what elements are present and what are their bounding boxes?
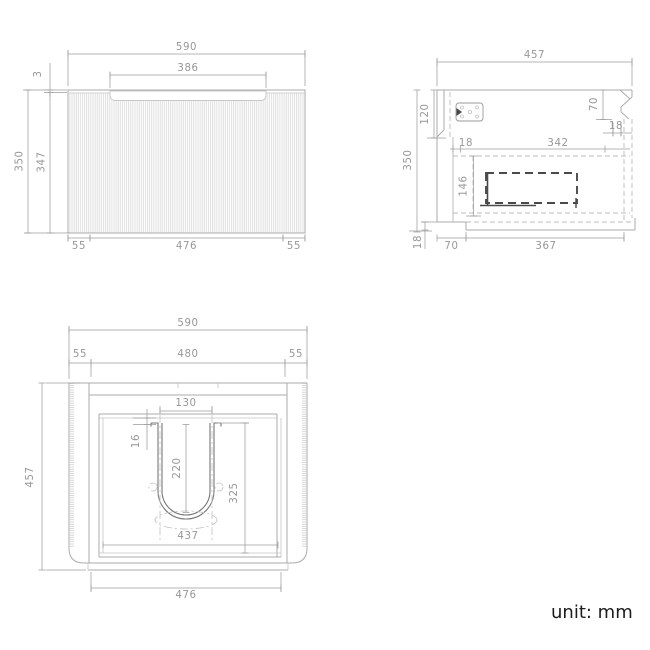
hidden-basin-outline xyxy=(486,173,577,203)
side-drawer-depth-dim: 342 xyxy=(547,138,568,149)
plan-front-width-dim: 476 xyxy=(175,590,196,601)
unit-label: unit: mm xyxy=(551,602,633,623)
front-view: 590 386 3 350 347 55 476 55 xyxy=(15,42,306,252)
side-back-gap-dim: 18 xyxy=(459,138,473,149)
plan-overall-width-dim: 590 xyxy=(177,318,198,329)
front-recess-width-dim: 386 xyxy=(177,63,198,74)
side-overall-height-dim: 350 xyxy=(403,149,414,170)
plan-cutout-offset-dim: 16 xyxy=(131,434,142,448)
plan-opening-width-dim: 480 xyxy=(177,349,198,360)
side-view: 457 120 350 70 18 18 342 146 18 70 367 xyxy=(403,50,635,252)
plan-inner-width-dim: 437 xyxy=(177,531,198,542)
side-overall-depth-dim: 457 xyxy=(524,50,545,61)
drawing-svg: 590 386 3 350 347 55 476 55 xyxy=(0,0,650,650)
wall-bracket xyxy=(456,103,483,121)
front-panel-height-dim: 347 xyxy=(37,151,48,172)
plan-left-side-dim: 55 xyxy=(73,349,87,360)
plan-right-side-dim: 55 xyxy=(289,349,303,360)
fluted-texture xyxy=(69,93,305,232)
side-drawer-height-dim: 146 xyxy=(459,175,470,196)
plan-cutout-width-dim: 130 xyxy=(175,398,196,409)
side-dims xyxy=(409,58,632,249)
side-bottom-back-offset-dim: 70 xyxy=(444,241,458,252)
side-rail-drop-dim: 120 xyxy=(420,103,431,124)
front-left-side-dim: 55 xyxy=(72,241,86,252)
front-overall-height-dim: 350 xyxy=(15,150,26,171)
plan-cutout-depth-dim: 220 xyxy=(172,457,183,478)
vanity-dimension-drawing: 590 386 3 350 347 55 476 55 xyxy=(0,0,650,650)
side-recess-setback-dim: 18 xyxy=(609,121,623,132)
side-bottom-thickness-dim: 18 xyxy=(413,235,424,249)
side-bottom-length-dim: 367 xyxy=(535,241,556,252)
plan-view: 590 55 480 55 457 130 16 220 325 437 476 xyxy=(25,318,307,601)
front-top-edge-dim: 3 xyxy=(33,70,44,77)
side-top-recess-height-dim: 70 xyxy=(589,97,600,111)
front-right-side-dim: 55 xyxy=(287,241,301,252)
front-overall-width-dim: 590 xyxy=(176,42,197,53)
front-center-width-dim: 476 xyxy=(176,241,197,252)
plan-overall-depth-dim: 457 xyxy=(25,466,36,487)
handle-recess xyxy=(110,91,266,101)
plan-inner-depth-dim: 325 xyxy=(229,482,240,503)
